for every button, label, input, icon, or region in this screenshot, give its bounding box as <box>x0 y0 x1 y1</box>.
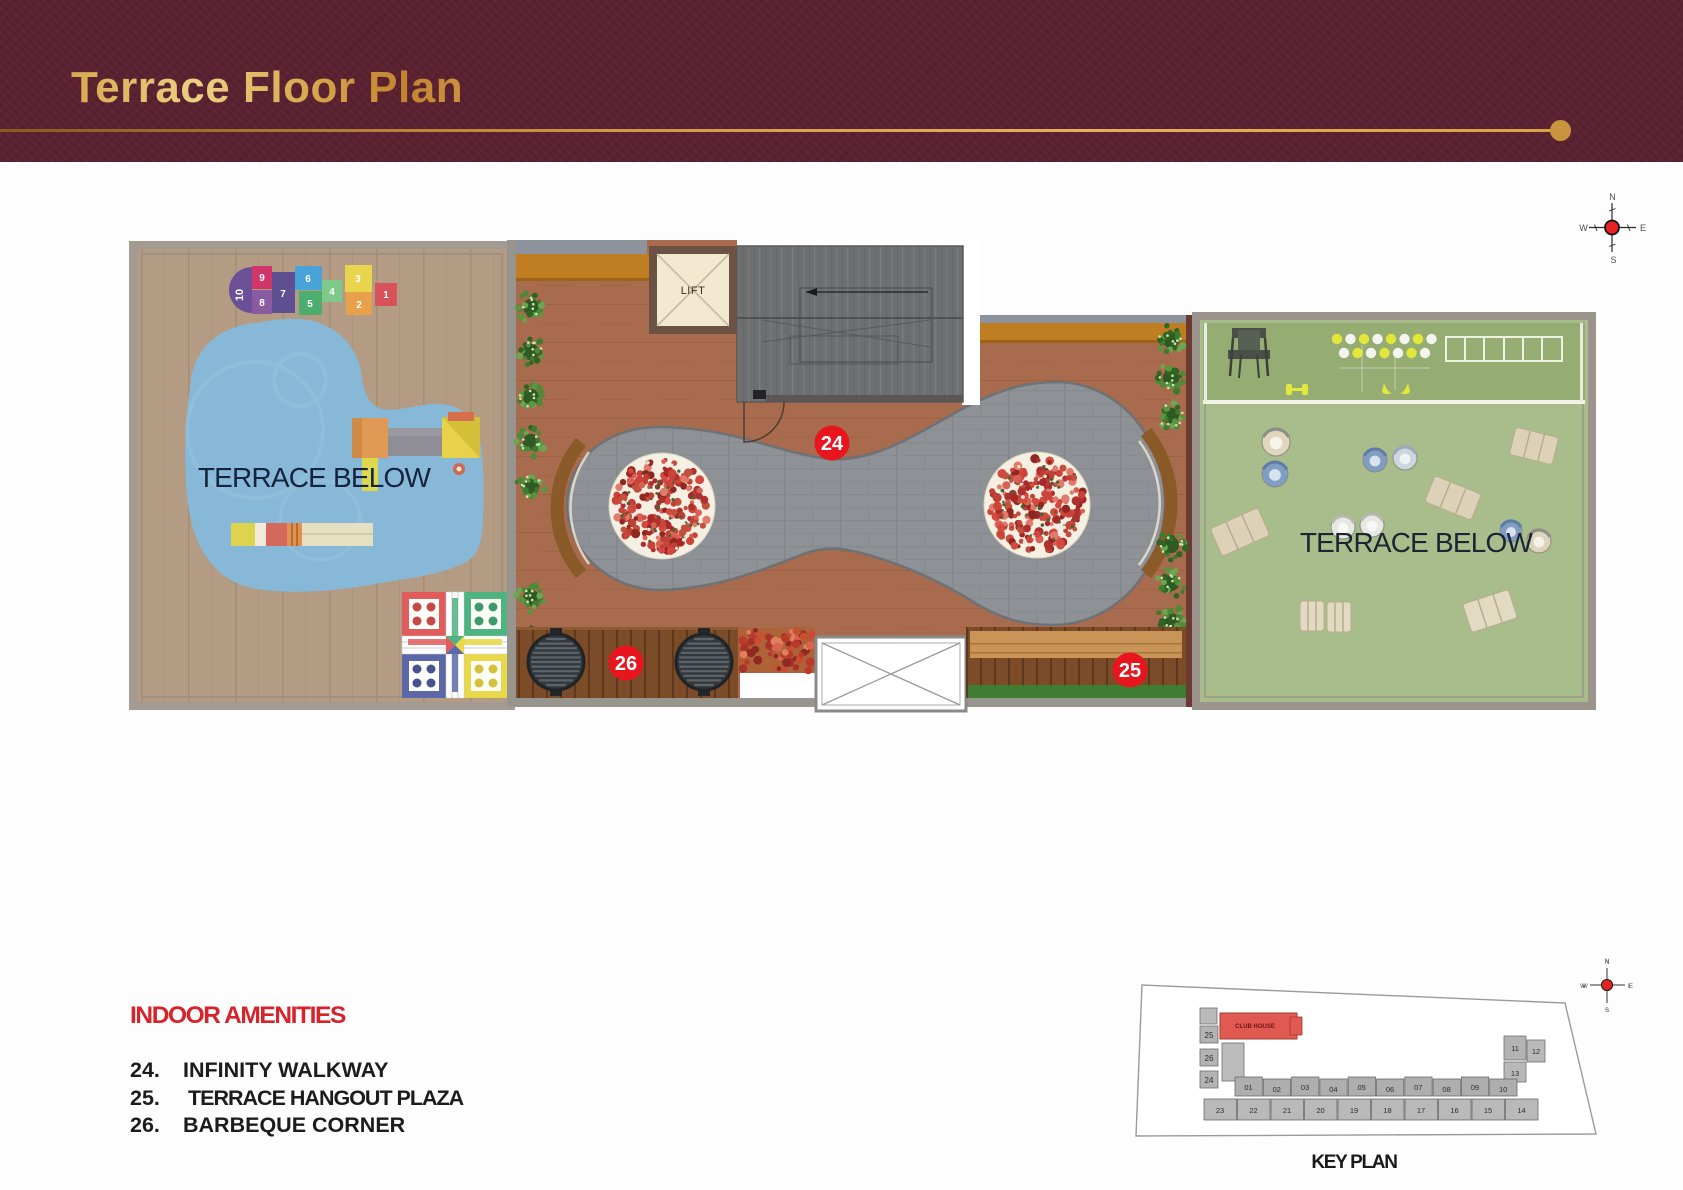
svg-text:N: N <box>1605 959 1609 965</box>
svg-text:11: 11 <box>1511 1044 1519 1053</box>
svg-text:TERRACE BELOW: TERRACE BELOW <box>198 462 432 493</box>
svg-text:20: 20 <box>1316 1106 1324 1115</box>
svg-text:25: 25 <box>1205 1031 1214 1040</box>
svg-text:INDOOR AMENITIES: INDOOR AMENITIES <box>130 1002 346 1029</box>
svg-text:26: 26 <box>1205 1054 1214 1063</box>
svg-text:10: 10 <box>234 289 246 301</box>
svg-text:24.: 24. <box>130 1058 160 1082</box>
svg-text:08: 08 <box>1442 1085 1450 1094</box>
svg-text:24: 24 <box>821 433 844 455</box>
svg-text:21: 21 <box>1283 1106 1291 1115</box>
svg-text:1: 1 <box>383 290 389 301</box>
svg-text:05: 05 <box>1358 1083 1366 1092</box>
svg-text:W: W <box>1580 984 1586 990</box>
svg-text:22: 22 <box>1249 1106 1257 1115</box>
svg-text:CLUB HOUSE: CLUB HOUSE <box>1235 1024 1275 1030</box>
svg-text:10: 10 <box>1499 1085 1507 1094</box>
svg-text:19: 19 <box>1350 1106 1358 1115</box>
svg-text:15: 15 <box>1484 1106 1492 1115</box>
svg-text:25: 25 <box>1119 660 1141 682</box>
svg-text:TERRACE HANGOUT PLAZA: TERRACE HANGOUT PLAZA <box>188 1086 464 1110</box>
svg-text:03: 03 <box>1301 1083 1309 1092</box>
svg-text:S: S <box>1605 1008 1609 1014</box>
svg-text:14: 14 <box>1517 1106 1525 1115</box>
svg-text:E: E <box>1629 984 1633 990</box>
svg-text:LIFT: LIFT <box>681 285 706 297</box>
svg-text:7: 7 <box>280 289 286 300</box>
svg-text:13: 13 <box>1511 1069 1519 1078</box>
svg-text:26.: 26. <box>130 1113 160 1137</box>
svg-text:07: 07 <box>1414 1083 1422 1092</box>
svg-text:8: 8 <box>259 298 265 309</box>
svg-text:6: 6 <box>305 274 311 285</box>
svg-text:5: 5 <box>307 299 313 310</box>
svg-text:23: 23 <box>1216 1106 1224 1115</box>
svg-text:06: 06 <box>1386 1085 1394 1094</box>
svg-text:26: 26 <box>615 653 637 675</box>
svg-text:INFINITY WALKWAY: INFINITY WALKWAY <box>183 1058 388 1082</box>
svg-text:9: 9 <box>259 273 265 284</box>
svg-text:04: 04 <box>1329 1085 1337 1094</box>
svg-text:BARBEQUE CORNER: BARBEQUE CORNER <box>183 1113 406 1137</box>
svg-text:25.: 25. <box>130 1086 160 1110</box>
svg-text:TERRACE BELOW: TERRACE BELOW <box>1300 527 1534 558</box>
svg-text:09: 09 <box>1471 1083 1479 1092</box>
svg-text:18: 18 <box>1383 1106 1391 1115</box>
svg-text:17: 17 <box>1417 1106 1425 1115</box>
svg-text:3: 3 <box>355 274 361 285</box>
svg-text:02: 02 <box>1273 1085 1281 1094</box>
svg-text:KEY PLAN: KEY PLAN <box>1311 1152 1397 1173</box>
svg-text:24: 24 <box>1205 1076 1214 1085</box>
svg-text:12: 12 <box>1532 1047 1540 1056</box>
svg-text:4: 4 <box>329 287 335 298</box>
svg-text:2: 2 <box>356 300 362 311</box>
svg-text:01: 01 <box>1244 1083 1252 1092</box>
svg-text:16: 16 <box>1450 1106 1458 1115</box>
